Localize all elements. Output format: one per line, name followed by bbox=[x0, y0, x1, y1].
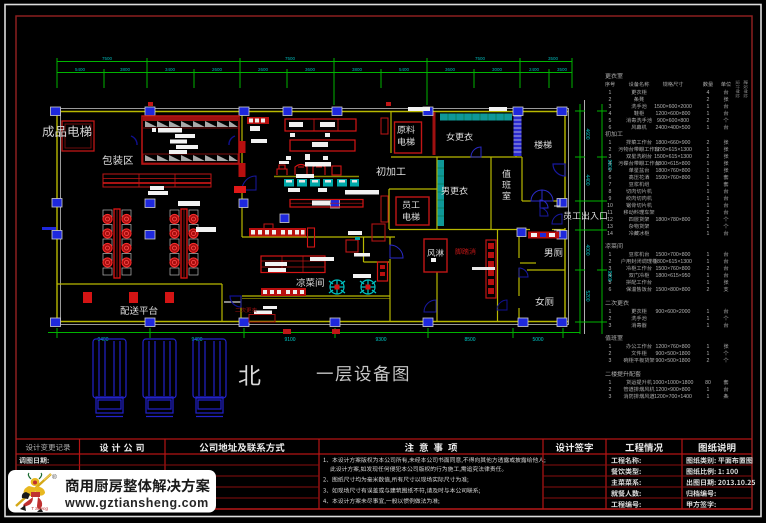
svg-text:900×500×1800: 900×500×1800 bbox=[656, 351, 691, 357]
svg-text:2600: 2600 bbox=[258, 67, 269, 72]
svg-text:2: 2 bbox=[609, 351, 612, 357]
svg-text:2400×400×500: 2400×400×500 bbox=[656, 125, 691, 131]
svg-text:4: 4 bbox=[707, 90, 710, 96]
svg-text:12: 12 bbox=[607, 217, 613, 223]
svg-text:5: 5 bbox=[609, 118, 612, 124]
svg-text:2: 2 bbox=[707, 358, 710, 364]
svg-text:1500×800×800: 1500×800×800 bbox=[656, 287, 691, 293]
svg-text:1: 1 bbox=[707, 224, 710, 230]
svg-text:1: 1 bbox=[609, 380, 612, 386]
svg-text:1: 1 bbox=[707, 147, 710, 153]
svg-text:8: 8 bbox=[609, 189, 612, 195]
svg-text:1800×660×900: 1800×660×900 bbox=[656, 140, 691, 146]
svg-text:2: 2 bbox=[707, 154, 710, 160]
svg-text:6: 6 bbox=[609, 175, 612, 181]
svg-text:9: 9 bbox=[609, 196, 612, 202]
svg-text:13: 13 bbox=[607, 224, 613, 230]
svg-text:1200×700×1400: 1200×700×1400 bbox=[654, 394, 692, 400]
svg-text:2600: 2600 bbox=[212, 67, 223, 72]
svg-text:2: 2 bbox=[609, 97, 612, 103]
svg-text:900×600×2000: 900×600×2000 bbox=[656, 309, 691, 315]
svg-text:2: 2 bbox=[609, 387, 612, 393]
svg-text:2: 2 bbox=[707, 266, 710, 272]
svg-text:900×600×800: 900×600×800 bbox=[657, 118, 689, 124]
svg-text:1: 1 bbox=[707, 189, 710, 195]
svg-text:2: 2 bbox=[707, 118, 710, 124]
svg-text:6: 6 bbox=[609, 287, 612, 293]
svg-text:3: 3 bbox=[609, 323, 612, 329]
svg-text:1: 1 bbox=[609, 140, 612, 146]
svg-text:7: 7 bbox=[609, 182, 612, 188]
svg-text:1: 1 bbox=[707, 387, 710, 393]
svg-text:5000: 5000 bbox=[532, 337, 543, 343]
svg-text:1: 1 bbox=[707, 273, 710, 279]
svg-text:1800×780×800: 1800×780×800 bbox=[656, 217, 691, 223]
svg-text:1800×615×800: 1800×615×800 bbox=[656, 161, 691, 167]
svg-text:3: 3 bbox=[609, 266, 612, 272]
svg-text:4: 4 bbox=[609, 161, 612, 167]
svg-text:1000×1000×1800: 1000×1000×1800 bbox=[653, 380, 694, 386]
svg-text:5400: 5400 bbox=[75, 67, 86, 72]
svg-text:1: 1 bbox=[707, 104, 710, 110]
svg-text:5400: 5400 bbox=[399, 67, 410, 72]
svg-text:7500: 7500 bbox=[285, 56, 296, 61]
svg-text:2: 2 bbox=[609, 147, 612, 153]
svg-text:1500×600×2000: 1500×600×2000 bbox=[654, 104, 692, 110]
svg-text:2400: 2400 bbox=[529, 67, 540, 72]
svg-text:5200: 5200 bbox=[584, 290, 590, 301]
svg-text:1800×760×800: 1800×760×800 bbox=[656, 168, 691, 174]
svg-text:4: 4 bbox=[609, 111, 612, 117]
svg-text:7500: 7500 bbox=[475, 56, 486, 61]
svg-text:1: 1 bbox=[707, 125, 710, 131]
svg-text:T Sheng: T Sheng bbox=[31, 506, 49, 511]
svg-text:1: 1 bbox=[707, 344, 710, 350]
svg-text:2: 2 bbox=[707, 210, 710, 216]
svg-text:®: ® bbox=[52, 473, 57, 481]
svg-text:1: 1 bbox=[609, 252, 612, 258]
svg-text:1: 1 bbox=[707, 280, 710, 286]
svg-text:9300: 9300 bbox=[375, 337, 386, 343]
svg-text:2: 2 bbox=[609, 316, 612, 322]
svg-text:1: 1 bbox=[707, 259, 710, 265]
svg-text:80: 80 bbox=[705, 380, 711, 386]
svg-text:1500×615×1300: 1500×615×1300 bbox=[654, 154, 692, 160]
svg-text:1: 1 bbox=[609, 90, 612, 96]
svg-text:3500: 3500 bbox=[548, 56, 559, 61]
svg-text:9100: 9100 bbox=[284, 337, 295, 343]
svg-text:3: 3 bbox=[609, 104, 612, 110]
svg-text:1: 1 bbox=[609, 309, 612, 315]
svg-text:4: 4 bbox=[609, 273, 612, 279]
svg-text:11: 11 bbox=[607, 210, 612, 216]
svg-text:1: 1 bbox=[707, 168, 710, 174]
svg-text:8500: 8500 bbox=[464, 337, 475, 343]
svg-text:2: 2 bbox=[609, 259, 612, 265]
svg-text:3500: 3500 bbox=[557, 67, 568, 72]
svg-text:1: 1 bbox=[707, 351, 710, 357]
svg-text:1: 1 bbox=[707, 182, 710, 188]
svg-text:5: 5 bbox=[609, 280, 612, 286]
svg-text:3800: 3800 bbox=[120, 67, 131, 72]
svg-text:1: 1 bbox=[707, 161, 710, 167]
svg-text:1200×600×800: 1200×600×800 bbox=[656, 111, 691, 117]
svg-text:4600: 4600 bbox=[584, 128, 590, 139]
svg-text:10: 10 bbox=[607, 203, 613, 209]
svg-text:7500: 7500 bbox=[102, 56, 113, 61]
svg-text:1500×700×800: 1500×700×800 bbox=[656, 252, 691, 258]
svg-text:1500×760×800: 1500×760×800 bbox=[656, 266, 691, 272]
svg-text:1: 1 bbox=[707, 252, 710, 258]
svg-text:3600: 3600 bbox=[305, 67, 316, 72]
svg-text:3: 3 bbox=[609, 154, 612, 160]
svg-text:3600: 3600 bbox=[445, 67, 456, 72]
svg-text:3: 3 bbox=[609, 358, 612, 364]
svg-text:1200×900×800: 1200×900×800 bbox=[656, 387, 691, 393]
svg-text:1: 1 bbox=[707, 309, 710, 315]
svg-text:2: 2 bbox=[707, 97, 710, 103]
svg-text:2: 2 bbox=[707, 140, 710, 146]
svg-text:1500×760×800: 1500×760×800 bbox=[656, 175, 691, 181]
svg-text:1: 1 bbox=[707, 394, 710, 400]
svg-text:1: 1 bbox=[707, 111, 710, 117]
svg-text:2: 2 bbox=[707, 287, 710, 293]
svg-text:1: 1 bbox=[609, 344, 612, 350]
svg-text:4400: 4400 bbox=[584, 174, 590, 185]
svg-text:1: 1 bbox=[707, 196, 710, 202]
svg-text:900×500×1800: 900×500×1800 bbox=[656, 358, 691, 364]
svg-text:www.gztiansheng.com: www.gztiansheng.com bbox=[64, 496, 209, 510]
svg-text:14: 14 bbox=[607, 231, 613, 237]
svg-text:1800×615×1300: 1800×615×1300 bbox=[654, 259, 692, 265]
svg-text:1: 1 bbox=[707, 231, 710, 237]
svg-text:4000: 4000 bbox=[584, 244, 590, 255]
svg-text:3: 3 bbox=[609, 394, 612, 400]
svg-text:6: 6 bbox=[609, 125, 612, 131]
svg-text:1: 1 bbox=[707, 175, 710, 181]
svg-text:3400: 3400 bbox=[165, 67, 176, 72]
svg-text:5: 5 bbox=[609, 168, 612, 174]
svg-text:1800×615×950: 1800×615×950 bbox=[656, 273, 691, 279]
svg-text:1200×615×1300: 1200×615×1300 bbox=[654, 147, 692, 153]
svg-text:2: 2 bbox=[707, 217, 710, 223]
svg-text:1: 1 bbox=[707, 203, 710, 209]
svg-text:3800: 3800 bbox=[352, 67, 363, 72]
svg-text:1: 1 bbox=[707, 316, 710, 322]
svg-text:3000: 3000 bbox=[492, 67, 503, 72]
svg-text:1200×760×800: 1200×760×800 bbox=[656, 344, 691, 350]
svg-text:1: 1 bbox=[707, 323, 710, 329]
